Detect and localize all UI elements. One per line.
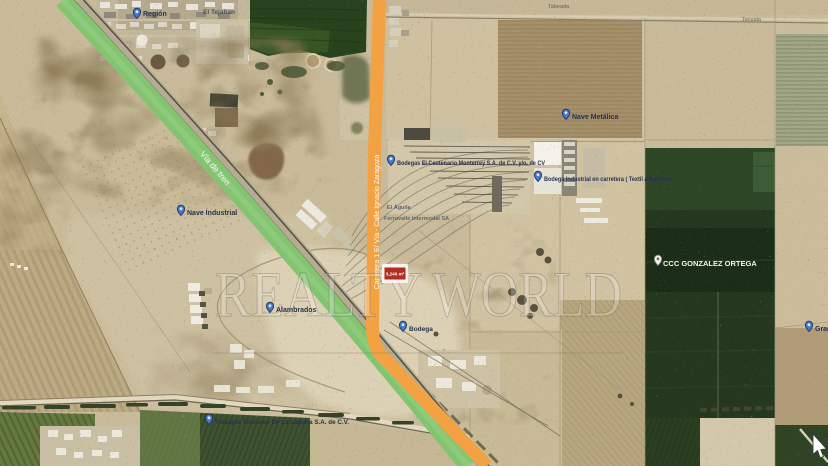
svg-text:Región: Región [143, 11, 167, 18]
svg-text:Nave Industrial: Nave Industrial [187, 210, 237, 217]
svg-text:El Tejaban: El Tejaban [203, 9, 235, 16]
svg-text:Ferrovalle Intermodal SA: Ferrovalle Intermodal SA [384, 216, 449, 222]
svg-text:El Águila: El Águila [387, 204, 411, 211]
svg-text:Nave Metálica: Nave Metálica [572, 114, 618, 121]
svg-text:Bodega Industrial en carretera: Bodega Industrial en carretera ( Textil … [544, 176, 675, 183]
svg-text:Bodegas El Centenario Monterre: Bodegas El Centenario Monterrey S.A. de … [397, 160, 546, 167]
svg-text:CCC GONZALEZ ORTEGA: CCC GONZALEZ ORTEGA [663, 259, 757, 268]
svg-text:Trabajos Técnicos De La Laguna: Trabajos Técnicos De La Laguna S.A. de C… [215, 419, 349, 426]
svg-text:Alambrados: Alambrados [276, 307, 317, 314]
svg-text:Bodega: Bodega [409, 326, 433, 333]
svg-text:Tabeada: Tabeada [548, 4, 570, 10]
svg-text:WORLD: WORLD [432, 259, 622, 331]
svg-text:Tecuala: Tecuala [742, 17, 762, 23]
svg-text:Gran: Gran [815, 326, 828, 333]
svg-text:3,240 m²: 3,240 m² [386, 272, 405, 277]
